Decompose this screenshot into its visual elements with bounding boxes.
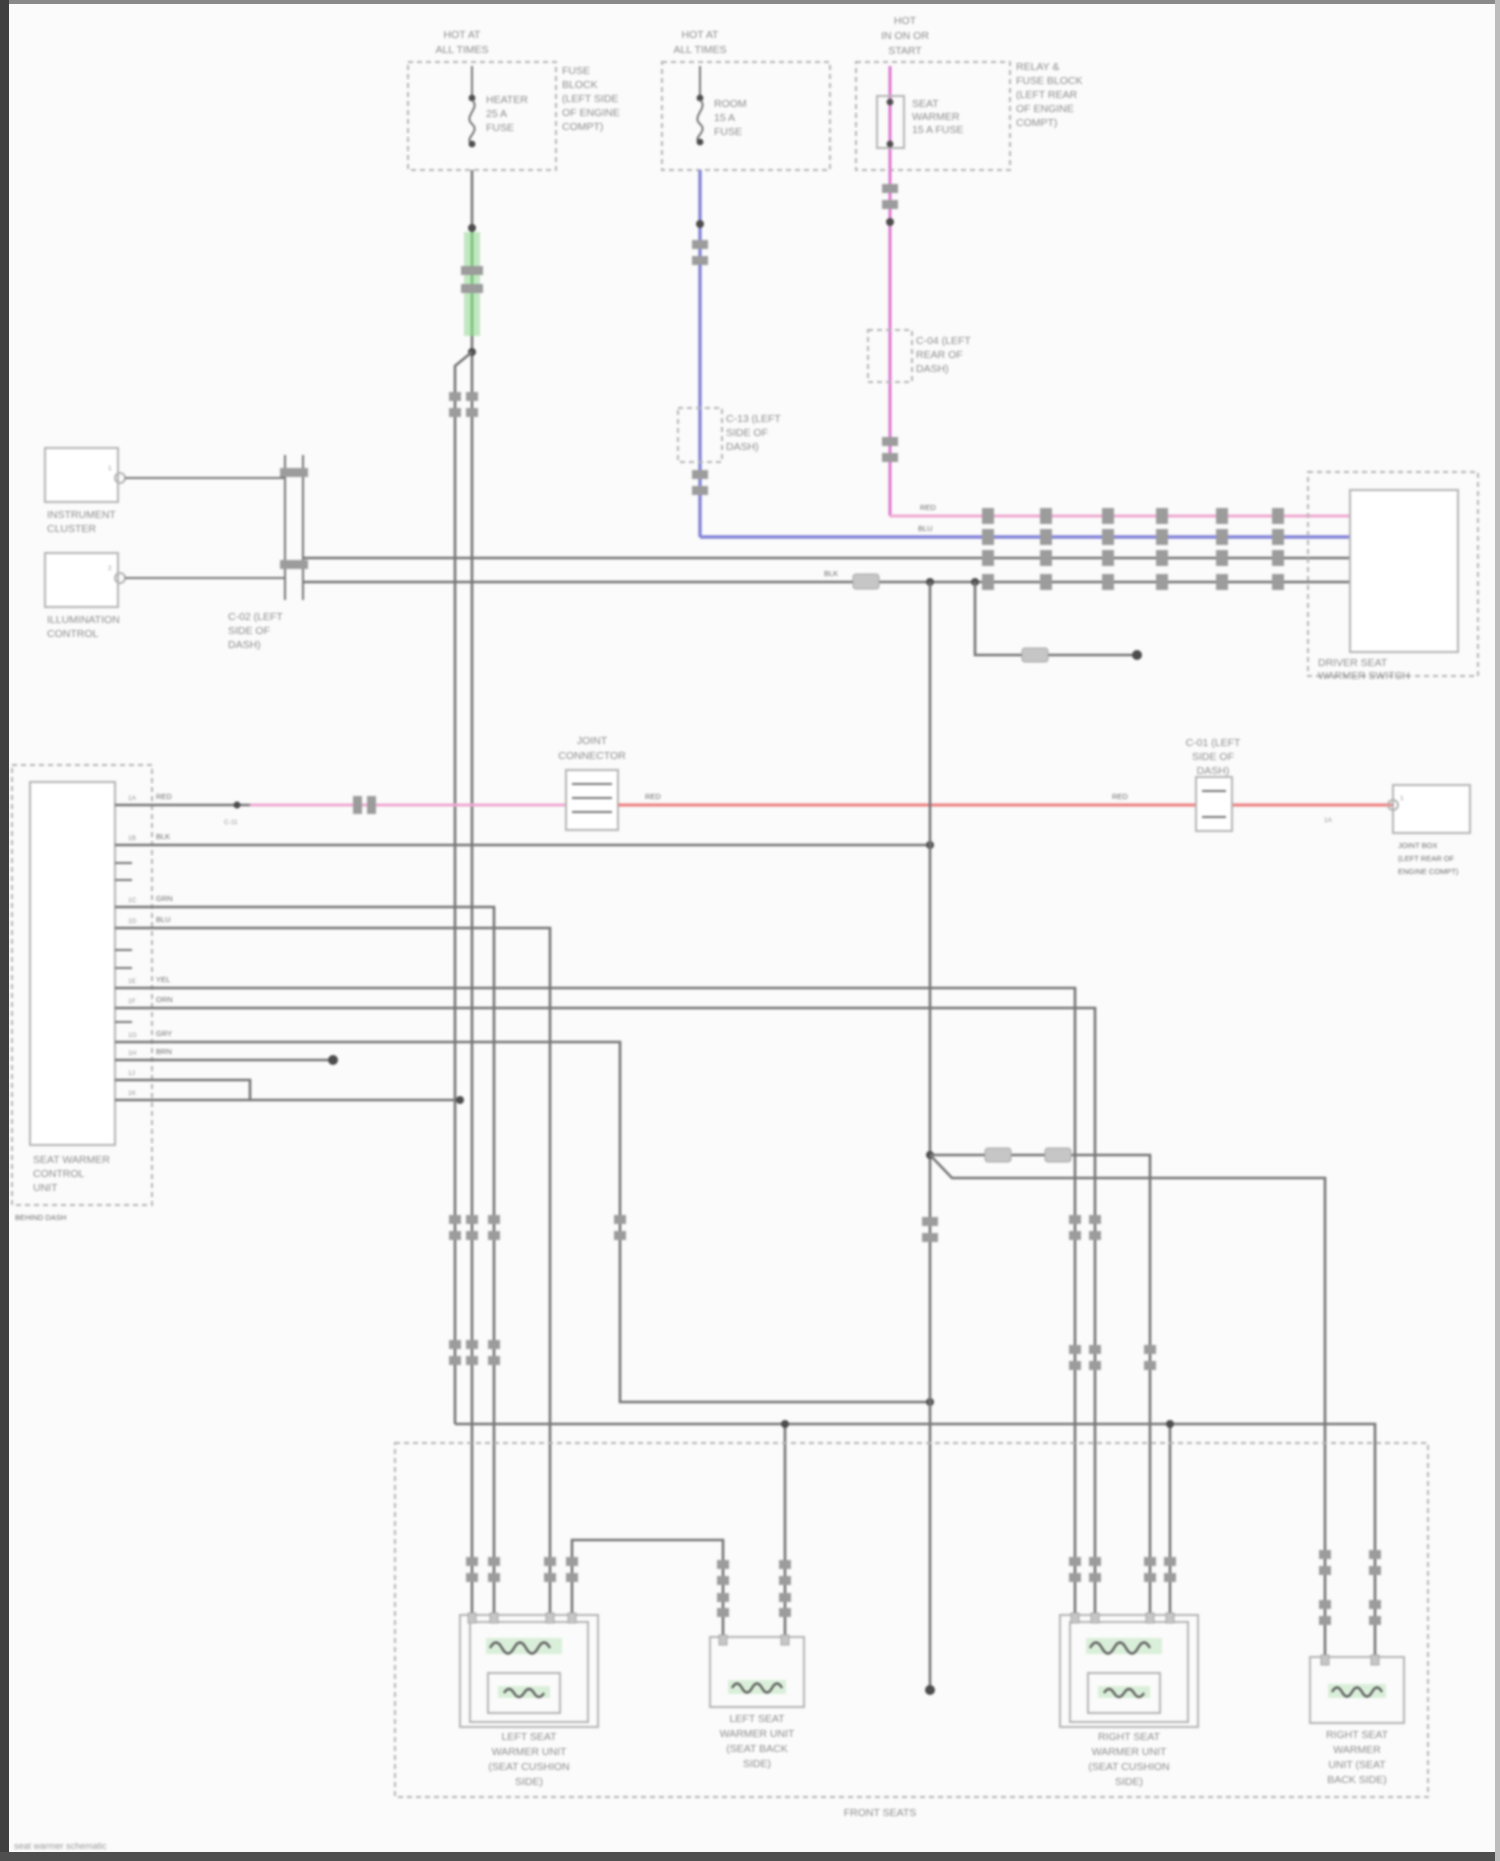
red-tag-1: RED [645,792,661,801]
fuse-a-hot-label: HOT AT [444,29,482,41]
red-tag-2: RED [1112,792,1128,801]
fuse-b-name: ROOM [714,98,747,110]
wiring-diagram-page: HOT AT ALL TIMES HEATER 25 A FUSE FUSE B… [0,0,1500,1861]
right-seat-cushion-warmer: RIGHT SEAT WARMER UNIT (SEAT CUSHION SID… [1060,1613,1198,1788]
footer-watermark: seat warmer schematic [14,1841,107,1851]
fuse-c-loc-3: (LEFT REAR [1016,89,1077,101]
inline-connector-ticks [449,1215,1381,1625]
unit-a-label-1: LEFT SEAT [501,1731,557,1743]
fuse-c-loc-2: FUSE BLOCK [1016,75,1083,87]
unit-d-label-3: UNIT (SEAT [1328,1759,1386,1771]
unit-c-label-3: (SEAT CUSHION [1088,1761,1169,1773]
pin-1b: 1B [128,835,136,842]
end-box-label-2: (LEFT REAR OF [1398,854,1455,863]
fuse-c-name2: WARMER [912,111,960,123]
pin-1g: 1G [128,1032,137,1039]
module-sub-label: BEHIND DASH [15,1213,66,1222]
fuse-c-hot-3: START [888,45,922,57]
red-joint-label-2: CONNECTOR [558,750,626,762]
pin-1c: 1C [128,897,137,904]
cluster-label-1: INSTRUMENT [47,509,116,521]
switch-label-1: DRIVER SEAT [1318,657,1388,669]
tag-r1: RED [156,792,172,801]
blue-conn-label-1: C-13 (LEFT [726,413,781,425]
pink-conn-label-1: C-04 (LEFT [916,335,971,347]
blue-conn-label-2: SIDE OF [726,427,768,439]
left-joint-connector: C-02 (LEFT SIDE OF DASH) [228,455,308,651]
unit-a-label-3: (SEAT CUSHION [488,1761,569,1773]
pink-conn-label-3: DASH) [916,363,949,375]
blue-feed-wire: C-13 (LEFT SIDE OF DASH) BLU [678,170,1352,537]
red-mid-conn-3: DASH) [1197,765,1230,777]
fuse-a-loc-4: OF ENGINE [562,107,620,119]
red-mid-conn-2: SIDE OF [1192,751,1234,763]
bundle-connectors [982,508,1284,590]
fuse-a-name: HEATER [486,94,528,106]
end-box-label-1: JOINT BOX [1398,841,1437,850]
fuse-a-hot-label2: ALL TIMES [435,44,488,56]
illum-label-2: CONTROL [47,628,98,640]
fuse-c-loc-4: OF ENGINE [1016,103,1074,115]
center-bus-wires [922,582,1325,1695]
fuse-a-loc-5: COMPT) [562,121,603,133]
fuse-a-loc-2: BLOCK [562,79,598,91]
tag-r7: GRY [156,1029,172,1038]
end-box-label-3: ENGINE COMPT) [1398,867,1459,876]
illum-pin: 2 [108,565,112,572]
seat-warmer-switch: DRIVER SEAT WARMER SWITCH [1308,472,1478,682]
unit-c-label-4: SIDE) [1115,1776,1143,1788]
unit-b-label-1: LEFT SEAT [729,1713,785,1725]
pink-feed-wire: C-04 (LEFT REAR OF DASH) RED [868,170,1352,516]
fuse-box-b: HOT AT ALL TIMES ROOM 15 A FUSE [662,29,830,170]
fuse-c-hot-1: HOT [894,15,917,27]
unit-b-label-2: WARMER UNIT [720,1728,795,1740]
fuse-box-a: HOT AT ALL TIMES HEATER 25 A FUSE FUSE B… [408,29,620,170]
pin-1j: 1J [128,1070,135,1077]
fuse-a-rating: 25 A [486,108,507,120]
pin-1e: 1E [128,978,137,985]
fuse-c-hot-2: IN ON OR [881,30,929,42]
blue-wire-color-tag: BLU [918,524,933,533]
module-label-2: CONTROL [33,1168,84,1180]
fuse-a-type: FUSE [486,122,514,134]
page-frame [0,0,1500,1861]
red-joint-label-1: JOINT [577,735,608,747]
left-joint-label-3: DASH) [228,639,261,651]
cluster-pin: 1 [108,465,112,472]
tag-r3: GRN [156,894,173,903]
unit-d-label-1: RIGHT SEAT [1326,1729,1389,1741]
illum-label-1: ILLUMINATION [47,614,120,626]
tag-r8: BRN [156,1047,172,1056]
pin-1k: 1K [128,1090,137,1097]
blue-conn-label-3: DASH) [726,441,759,453]
tag-r4: BLU [156,915,171,924]
unit-d-label-4: BACK SIDE) [1327,1774,1387,1786]
fuse-c-loc-5: COMPT) [1016,117,1057,129]
module-label-3: UNIT [33,1182,58,1194]
module-label-1: SEAT WARMER [33,1154,110,1166]
tag-r2: BLK [156,832,170,841]
fuse-b-type: FUSE [714,126,742,138]
fuse-b-hot-label2: ALL TIMES [673,44,726,56]
fuse-c-loc-1: RELAY & [1016,61,1059,73]
end-box-pin: 1 [1400,795,1404,802]
red-mid-conn-1: C-01 (LEFT [1186,737,1241,749]
left-seat-cushion-warmer: LEFT SEAT WARMER UNIT (SEAT CUSHION SIDE… [460,1613,598,1788]
fuse-c-rating: 15 A FUSE [912,124,963,136]
unit-a-label-2: WARMER UNIT [492,1746,567,1758]
unit-c-label-1: RIGHT SEAT [1098,1731,1161,1743]
green-feed-wire [449,170,483,1620]
pin-1a: 1A [128,795,137,802]
left-seat-back-warmer: LEFT SEAT WARMER UNIT (SEAT BACK SIDE) [710,1635,804,1770]
front-seats-label: FRONT SEATS [844,1807,917,1819]
red-tag-3: 1A [1324,817,1333,824]
fuse-a-loc-3: (LEFT SIDE [562,93,618,105]
tag-r5: YEL [156,975,170,984]
unit-d-label-2: WARMER [1333,1744,1381,1756]
pin-1h: 1H [128,1050,137,1057]
red-run: C-11 JOINT CONNECTOR RED RED C-01 (LEFT … [115,735,1470,876]
right-seat-back-warmer: RIGHT SEAT WARMER UNIT (SEAT BACK SIDE) [1310,1655,1404,1786]
h0-wire-color-tag: BLK [824,569,838,578]
unit-a-label-4: SIDE) [515,1776,543,1788]
unit-b-label-3: (SEAT BACK [726,1743,787,1755]
unit-b-label-4: SIDE) [743,1758,771,1770]
pin-1d: 1D [128,918,137,925]
pin-1f: 1F [128,998,136,1005]
cluster-label-2: CLUSTER [47,523,96,535]
fuse-box-c: HOT IN ON OR START SEAT WARMER 15 A FUSE… [856,15,1083,170]
left-joint-label-2: SIDE OF [228,625,270,637]
wiring-diagram: HOT AT ALL TIMES HEATER 25 A FUSE FUSE B… [0,0,1500,1861]
fuse-a-loc-1: FUSE [562,65,590,77]
pink-wire-color-tag: RED [920,503,936,512]
fuse-b-hot-label: HOT AT [682,29,720,41]
unit-c-label-2: WARMER UNIT [1092,1746,1167,1758]
fuse-c-name: SEAT [912,98,939,110]
switch-label-2: WARMER SWITCH [1318,670,1410,682]
fuse-b-rating: 15 A [714,112,735,124]
seat-warmer-control-unit: SEAT WARMER CONTROL UNIT BEHIND DASH 1A … [12,765,152,1222]
pink-conn-label-2: REAR OF [916,349,963,361]
switch-feed-wires: BLK [303,508,1352,662]
instrument-cluster-box: 1 INSTRUMENT CLUSTER [45,448,285,535]
tag-r6: ORN [156,995,173,1004]
left-joint-label-1: C-02 (LEFT [228,611,283,623]
return-bus-wires [455,1420,1375,1657]
red-small-conn: C-11 [224,819,238,826]
